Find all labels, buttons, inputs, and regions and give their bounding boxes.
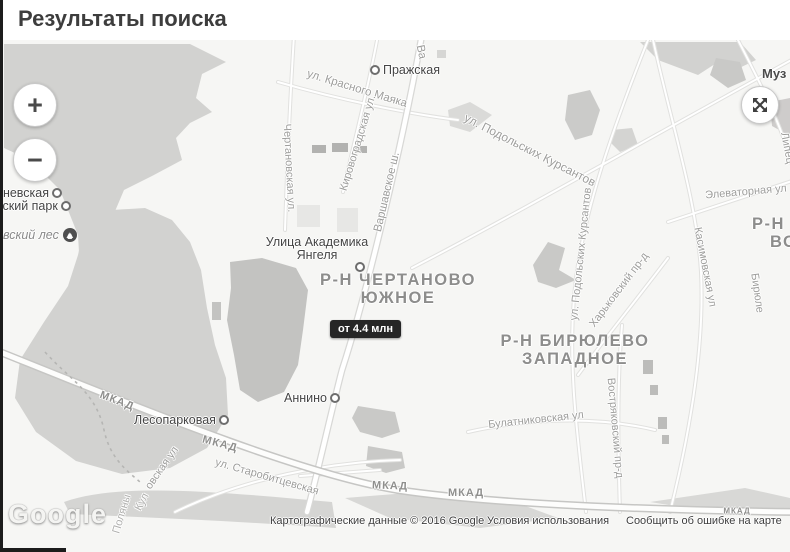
zoom-in-button[interactable]: + — [13, 83, 57, 127]
attribution-terms-link[interactable]: Условия использования — [487, 515, 609, 527]
metro-icon — [330, 393, 340, 403]
metro-label-nevskaya: еневская — [0, 186, 62, 200]
price-marker[interactable]: от 4.4 млн — [330, 320, 401, 338]
mkad-label-3: МКАД — [372, 479, 408, 492]
mkad-label-4: МКАД — [448, 487, 484, 499]
tree-icon: ▲ — [63, 228, 77, 242]
park-label-bitsevsky-les: евский лес ▲ — [0, 228, 77, 242]
page-title: Результаты поиска — [18, 6, 227, 32]
district-label-chertanovo: Р-Н ЧЕРТАНОВО ЮЖНОЕ — [278, 272, 518, 308]
expand-icon — [750, 95, 770, 115]
window-bottom-edge — [0, 548, 66, 552]
search-results-page: Результаты поиска — [0, 0, 790, 552]
minus-icon: − — [27, 147, 43, 174]
attribution-report-link[interactable]: Сообщить об ошибке на карте — [626, 515, 782, 527]
area-pond-podolskikh — [533, 242, 576, 288]
google-logo[interactable]: Google — [8, 499, 107, 530]
attribution-copyright: Картографические данные © 2016 Google — [270, 515, 484, 527]
metro-label-prazhskaya: Пражская — [370, 63, 440, 77]
area-mid-right-1 — [565, 90, 600, 140]
metro-icon — [370, 65, 380, 75]
street-label-varshavskoe-top: Ва — [414, 44, 429, 60]
metro-icon — [219, 415, 229, 425]
plus-icon: + — [27, 92, 43, 119]
district-label-biryulevo-zapadnoe: Р-Н БИРЮЛЕВО ЗАПАДНОЕ — [455, 333, 695, 369]
poi-label-museum: Муз — [762, 66, 786, 81]
metro-label-akademika-yangelya: Улица Академика Янгеля — [237, 236, 397, 262]
fullscreen-button[interactable] — [741, 86, 779, 124]
zoom-out-button[interactable]: − — [13, 138, 57, 182]
area-bitsevsky-forest — [15, 208, 228, 474]
header: Результаты поиска — [0, 0, 790, 40]
metro-label-annino: Аннино — [284, 391, 340, 405]
metro-icon — [52, 188, 62, 198]
district-label-vostochnoe-clipped: Р-Н ВО — [752, 216, 790, 252]
metro-icon — [61, 201, 71, 211]
metro-icon-akademika — [355, 262, 365, 272]
window-left-edge — [0, 0, 3, 552]
area-annino-blob-1 — [352, 406, 400, 438]
metro-label-lesoparkovaya: Лесопарковая — [134, 413, 229, 427]
metro-label-park: вский парк — [0, 199, 71, 213]
map-canvas[interactable]: ул. Красного Маяка Ва Варшавское ш. Черт… — [0, 40, 790, 552]
